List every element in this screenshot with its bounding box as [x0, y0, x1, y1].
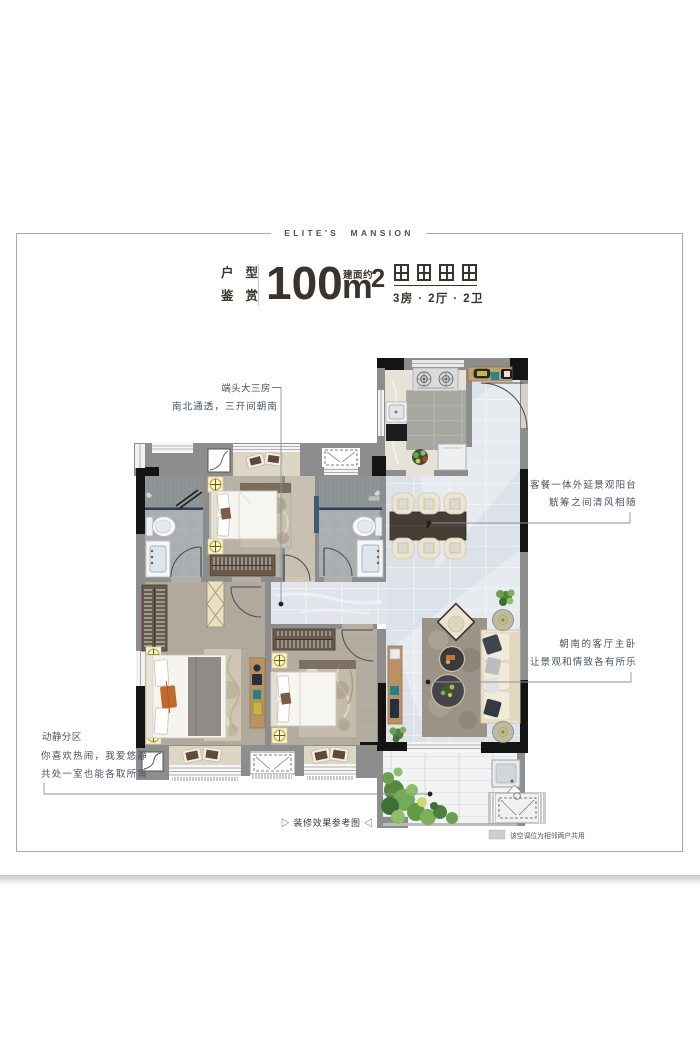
svg-text:觥筹之间清风相随: 觥筹之间清风相随	[549, 497, 637, 509]
svg-text:共处一室也能各取所需: 共处一室也能各取所需	[41, 768, 148, 780]
svg-text:客餐一体外延景观阳台: 客餐一体外延景观阳台	[530, 479, 637, 491]
svg-text:让景观和情致各有所乐: 让景观和情致各有所乐	[530, 656, 637, 668]
svg-text:端头大三房: 端头大三房	[221, 383, 271, 395]
svg-text:你喜欢热闹，我爱悠静: 你喜欢热闹，我爱悠静	[41, 750, 148, 762]
svg-text:动静分区: 动静分区	[42, 731, 82, 743]
svg-text:该空调位为相邻两户共用: 该空调位为相邻两户共用	[510, 831, 585, 840]
svg-text:朝南的客厅主卧: 朝南的客厅主卧	[559, 638, 637, 650]
svg-text:南北通透，三开间朝南: 南北通透，三开间朝南	[172, 401, 278, 413]
svg-text:▷ 装修效果参考图 ◁: ▷ 装修效果参考图 ◁	[281, 817, 374, 828]
